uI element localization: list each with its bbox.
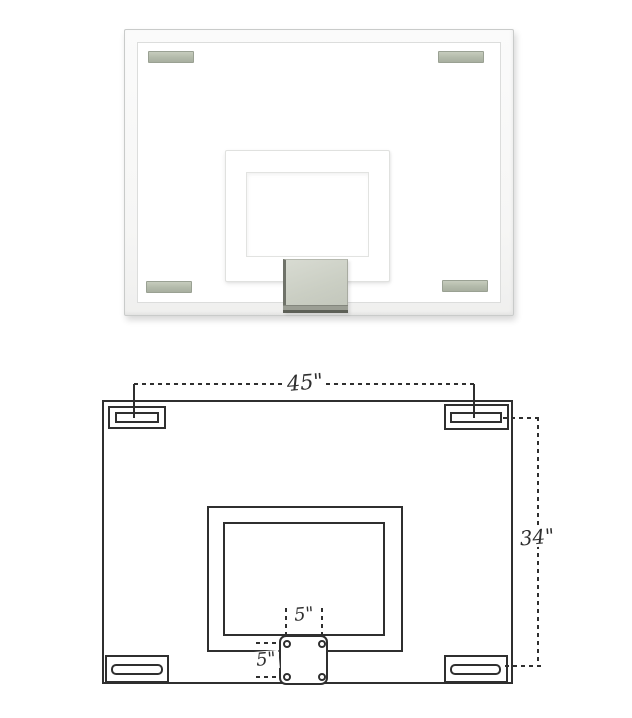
width-dimension-label: 45": [283, 371, 327, 396]
diagram-slot-bottom-left: [111, 664, 163, 675]
bolt-spacing-h-line-left: [285, 608, 287, 638]
width-extension-line-left: [133, 384, 135, 418]
mounting-pad-bottom-left: [146, 281, 192, 293]
bolt-spacing-horizontal-label: 5": [290, 605, 317, 625]
bolt-hole-top-right: [318, 640, 326, 648]
bolt-spacing-vertical-label: 5": [252, 650, 279, 670]
height-extension-line-bottom: [505, 665, 541, 667]
mounting-plate: [283, 259, 348, 313]
height-extension-line-top: [503, 417, 541, 419]
width-extension-line-right: [473, 384, 475, 418]
backboard-product-image: 45" 34" 5" 5": [0, 0, 632, 718]
diagram-slot-top-left: [115, 412, 159, 423]
diagram-slot-top-right: [450, 412, 502, 423]
height-dimension-label: 34": [516, 525, 558, 548]
bolt-hole-top-left: [283, 640, 291, 648]
mounting-plate-lip: [283, 305, 348, 313]
bolt-hole-bottom-right: [318, 673, 326, 681]
bolt-spacing-h-line-right: [321, 608, 323, 638]
mounting-pad-bottom-right: [442, 280, 488, 292]
mounting-pad-top-right: [438, 51, 484, 63]
shooter-square-opening: [246, 172, 369, 257]
bolt-hole-bottom-left: [283, 673, 291, 681]
diagram-slot-bottom-right: [450, 664, 501, 675]
backboard-photo: [124, 29, 514, 316]
mounting-pad-top-left: [148, 51, 194, 63]
